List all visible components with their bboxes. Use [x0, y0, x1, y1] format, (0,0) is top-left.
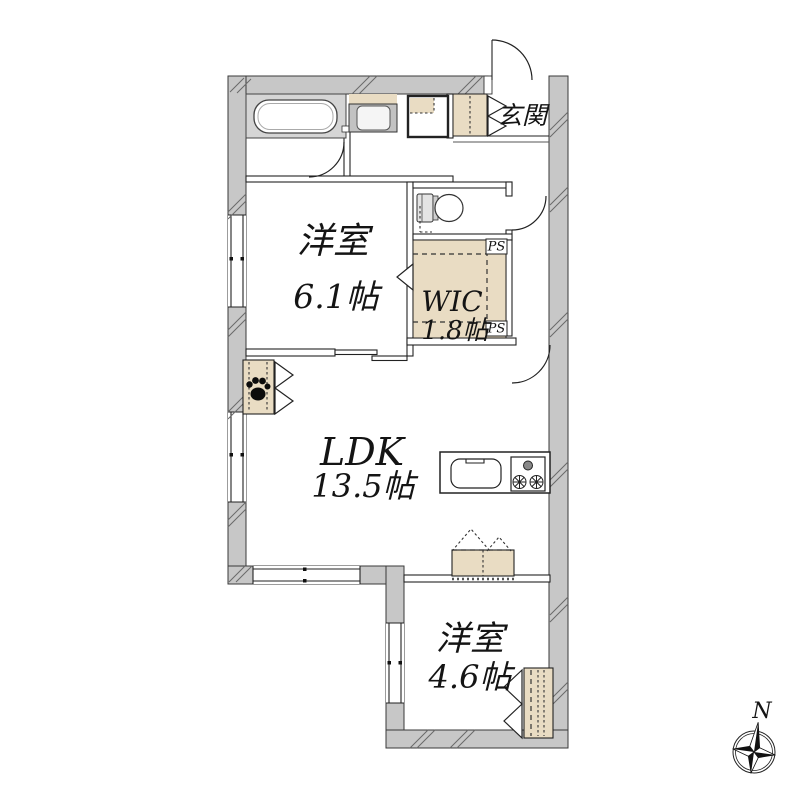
bath-door-swing [309, 142, 344, 177]
entrance-label: 玄関 [497, 101, 550, 130]
wall-left [228, 76, 246, 584]
floor-plan-page: 玄関 洋室 6.1帖 WIC 1.8帖 LDK 13.5帖 洋室 4.6帖 PS… [0, 0, 800, 800]
bathtub [254, 100, 337, 133]
wall-right [549, 76, 568, 748]
room2-name-label: 洋室 [436, 619, 509, 659]
window-tick [303, 579, 307, 583]
pet-cabinet-folding-door [275, 362, 293, 388]
ldk-size-label: 13.5帖 [311, 467, 418, 505]
room1-name-label: 洋室 [297, 221, 374, 262]
ps-label-top: PS [487, 240, 506, 255]
sliding-door-panel [372, 356, 407, 361]
toilet-tank [417, 194, 433, 222]
window-tick [230, 453, 234, 457]
compass: N [730, 699, 779, 776]
floor-plan-svg: 玄関 洋室 6.1帖 WIC 1.8帖 LDK 13.5帖 洋室 4.6帖 PS… [0, 0, 800, 800]
toilet-bowl [435, 195, 463, 222]
window-tick [399, 661, 403, 665]
window-tick [241, 453, 245, 457]
wall-washroom-south [246, 176, 453, 182]
wall-top-left-of-entrance [228, 76, 488, 94]
wic-name-label: WIC [421, 285, 482, 318]
ps-label-bottom: PS [487, 322, 506, 337]
laundry-area [349, 94, 448, 137]
window-tick [241, 257, 245, 261]
entrance-door-swing [492, 40, 532, 80]
room2-size-label: 4.6帖 [428, 658, 516, 696]
kitchen [440, 452, 550, 493]
wic-size-label: 1.8帖 [421, 316, 492, 346]
storage-counter [452, 529, 514, 579]
wic-entry-marker [397, 264, 413, 290]
room1-size-label: 6.1帖 [293, 277, 382, 316]
window-tick [388, 661, 392, 665]
pet-cabinet-folding-door [275, 388, 293, 414]
ldk-door-swing [512, 345, 550, 383]
wall-toilet-north [413, 182, 512, 188]
toilet-door-swing [512, 196, 546, 230]
washing-machine [357, 106, 390, 130]
bathroom [246, 94, 351, 177]
sliding-door-panel [335, 350, 377, 355]
wall-toilet-east-stub-top [506, 182, 512, 196]
toilet-room [417, 194, 546, 232]
wall-room1-south [246, 349, 335, 356]
window-tick [303, 568, 307, 572]
storage-counter-door-dashes [452, 529, 511, 551]
shoe-cabinet [453, 94, 487, 136]
window-tick [230, 257, 234, 261]
laundry-shelf [349, 94, 397, 104]
door-jamb [484, 76, 492, 94]
washbasin-counter [410, 98, 434, 113]
compass-north-label: N [751, 699, 772, 724]
pet-storage [243, 360, 293, 414]
